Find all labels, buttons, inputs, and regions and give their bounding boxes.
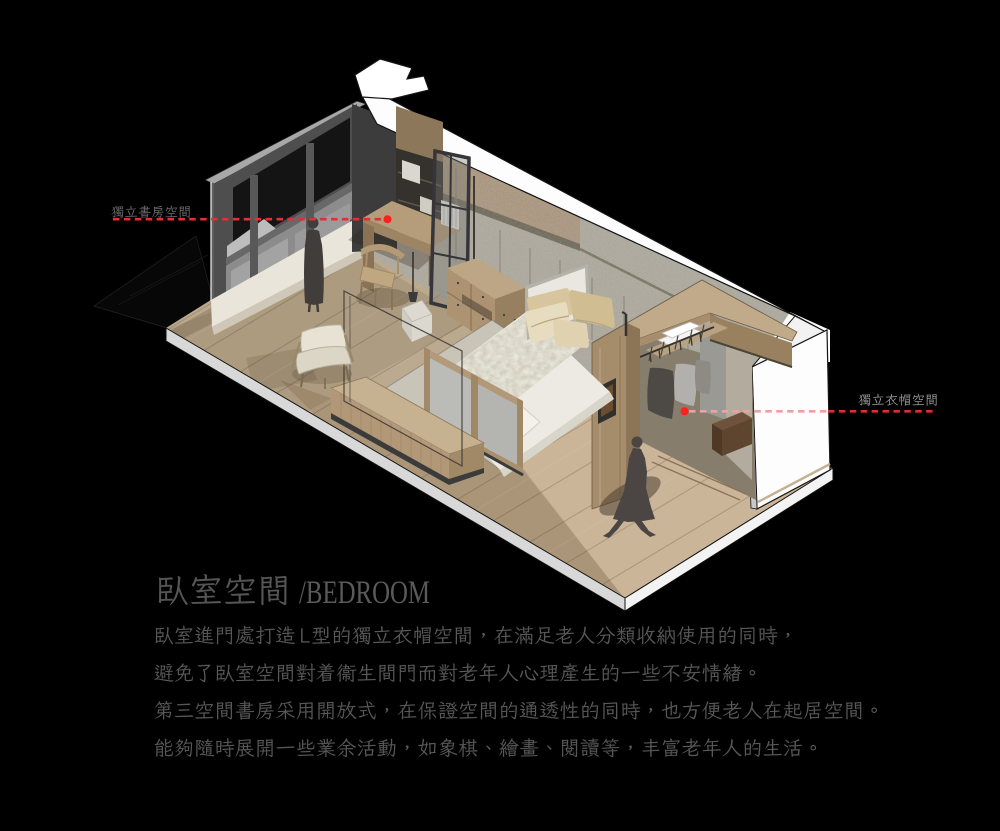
svg-text:/BEDROOM: /BEDROOM [299, 575, 430, 611]
